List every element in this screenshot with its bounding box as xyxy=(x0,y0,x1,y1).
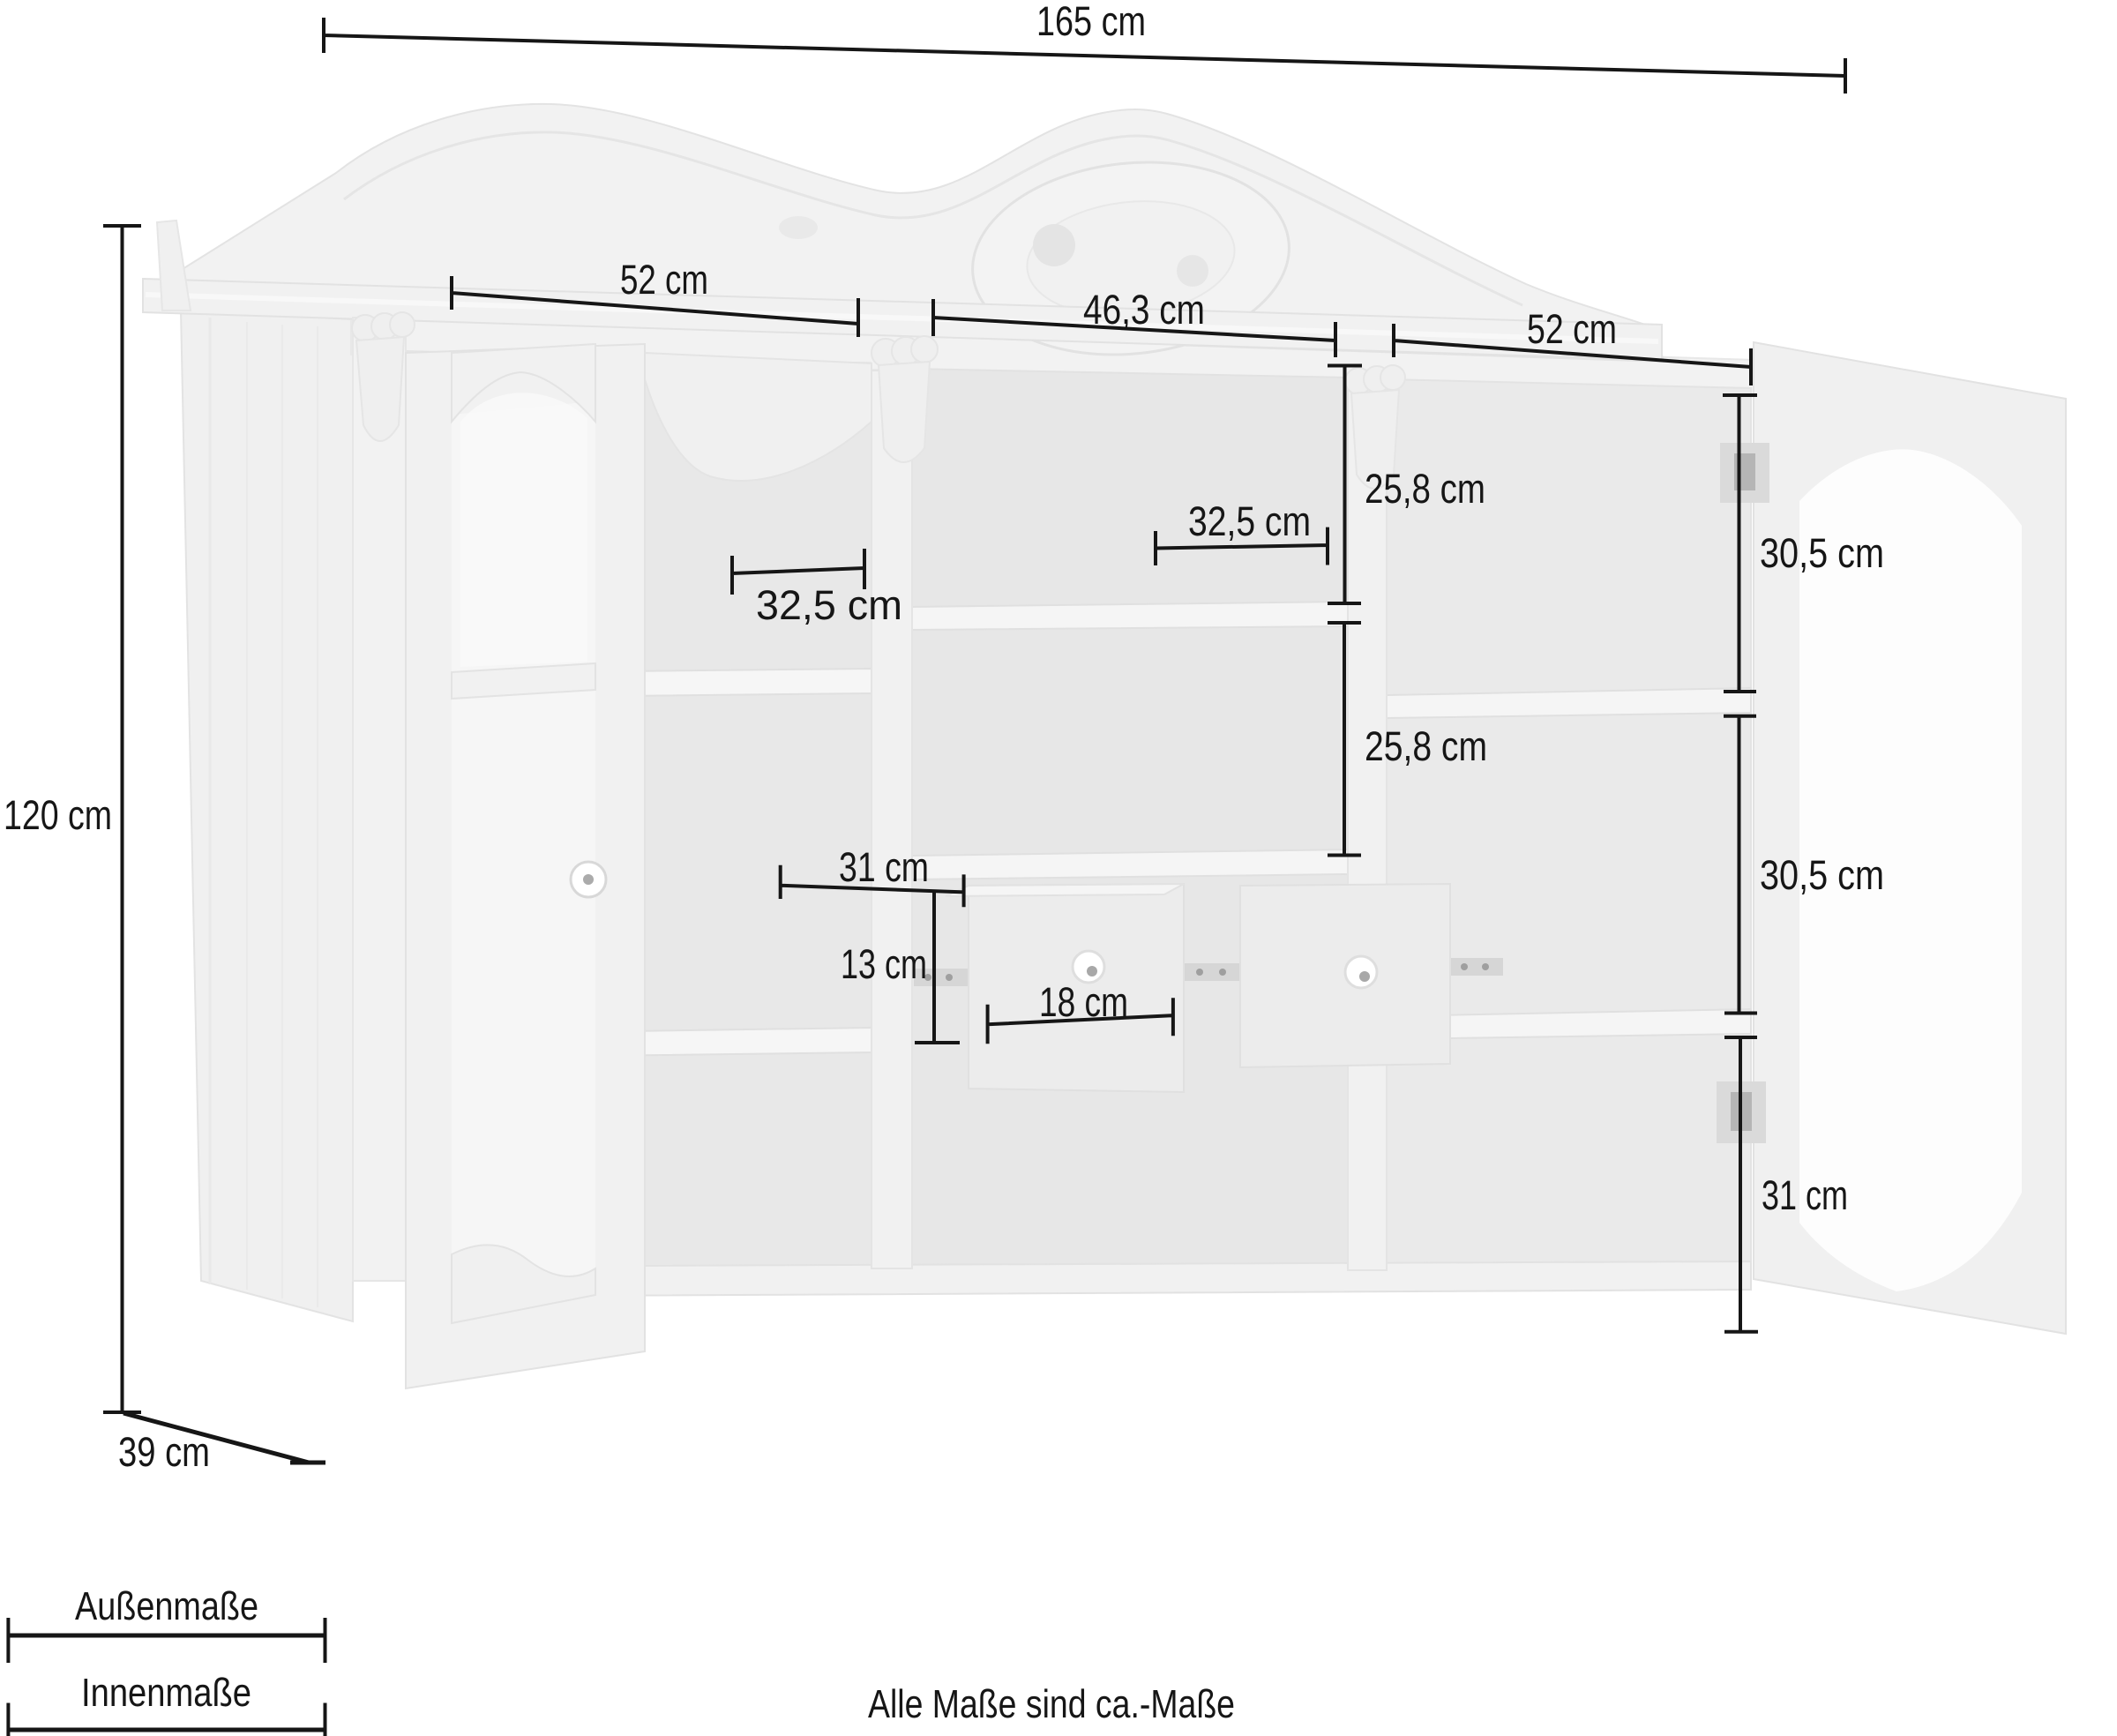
svg-text:18 cm: 18 cm xyxy=(1039,978,1128,1025)
svg-text:30,5 cm: 30,5 cm xyxy=(1760,851,1884,898)
svg-text:46,3 cm: 46,3 cm xyxy=(1083,286,1205,333)
svg-text:52 cm: 52 cm xyxy=(1527,305,1617,352)
svg-text:32,5 cm: 32,5 cm xyxy=(1188,498,1311,544)
svg-text:Alle Maße sind ca.-Maße: Alle Maße sind ca.-Maße xyxy=(868,1681,1235,1726)
svg-text:13 cm: 13 cm xyxy=(841,940,927,987)
svg-text:Innenmaße: Innenmaße xyxy=(81,1670,251,1715)
svg-text:25,8 cm: 25,8 cm xyxy=(1365,722,1487,769)
svg-text:120 cm: 120 cm xyxy=(4,791,112,838)
svg-text:52 cm: 52 cm xyxy=(620,256,708,303)
svg-text:165 cm: 165 cm xyxy=(1036,0,1146,44)
svg-text:31 cm: 31 cm xyxy=(839,843,929,890)
svg-text:25,8 cm: 25,8 cm xyxy=(1365,465,1485,512)
svg-text:30,5 cm: 30,5 cm xyxy=(1760,529,1884,576)
svg-text:31 cm: 31 cm xyxy=(1762,1171,1848,1218)
svg-text:39 cm: 39 cm xyxy=(118,1428,210,1475)
svg-text:Außenmaße: Außenmaße xyxy=(75,1583,258,1628)
svg-text:32,5 cm: 32,5 cm xyxy=(756,581,902,628)
